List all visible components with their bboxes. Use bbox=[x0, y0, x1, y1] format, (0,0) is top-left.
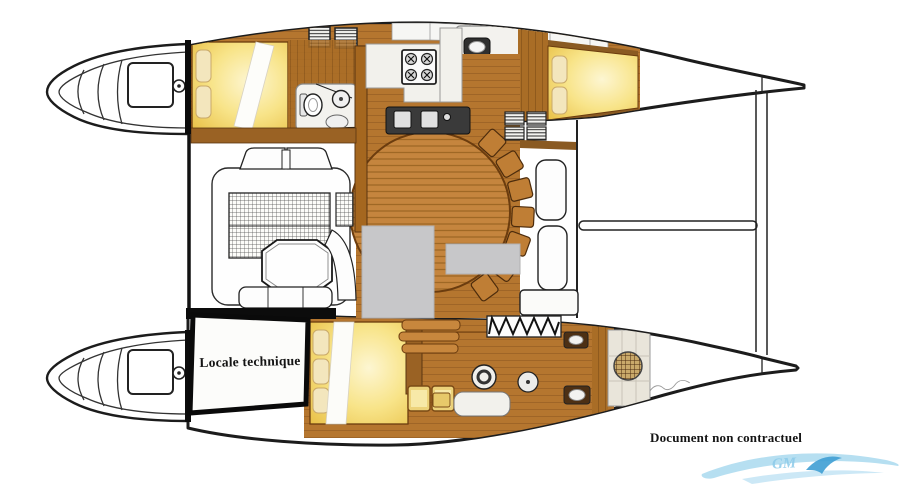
redaction-patch-1 bbox=[362, 226, 434, 318]
forward-crossbeam bbox=[579, 221, 757, 230]
mast-post bbox=[355, 46, 367, 232]
engine-hatch bbox=[128, 350, 173, 394]
bow-bridle-lines bbox=[756, 90, 767, 355]
cockpit bbox=[189, 128, 356, 310]
bench bbox=[454, 392, 510, 416]
pillow bbox=[196, 50, 211, 82]
foredeck-hatch-1 bbox=[536, 160, 566, 220]
redaction-patch-2 bbox=[446, 244, 520, 274]
pillow bbox=[196, 86, 211, 118]
disclaimer-label: Document non contractuel bbox=[650, 430, 820, 446]
port-stern-platform bbox=[47, 44, 188, 134]
deck-hatch-cover bbox=[520, 290, 578, 315]
shower-grate-icon bbox=[614, 352, 642, 380]
galley-sink-counter bbox=[386, 107, 470, 134]
foredeck-hatch-2 bbox=[538, 226, 567, 290]
tub-icon bbox=[326, 115, 348, 129]
technical-room-label: Locale technique bbox=[193, 317, 307, 407]
cabin-floor bbox=[592, 326, 608, 416]
port-aft-cabin-bed bbox=[192, 42, 288, 130]
salon bbox=[350, 28, 546, 318]
starboard-stern-platform bbox=[47, 332, 188, 421]
shower-tiles bbox=[608, 330, 650, 406]
pillow bbox=[313, 330, 329, 355]
pillow bbox=[552, 56, 567, 83]
hull-junction-bar-port bbox=[185, 40, 191, 134]
cockpit-bench-fwd bbox=[239, 287, 332, 308]
starboard-aft-cabin-bed bbox=[310, 322, 408, 424]
engine-hatch bbox=[128, 63, 173, 107]
pillow bbox=[313, 388, 329, 413]
hull-steps bbox=[399, 320, 460, 353]
pillow bbox=[552, 87, 567, 114]
stool bbox=[433, 393, 450, 407]
cockpit-table bbox=[262, 240, 332, 292]
port-aft-head bbox=[296, 84, 358, 132]
sink-icon bbox=[333, 91, 350, 108]
toilet-icon bbox=[300, 94, 322, 116]
floor-plan-drawing bbox=[0, 0, 900, 495]
wave-logo bbox=[702, 453, 899, 484]
cabin-floor bbox=[518, 28, 548, 124]
salon-aft-wall bbox=[191, 128, 356, 143]
wave-logo-text: GM bbox=[772, 455, 797, 473]
toilet-icon bbox=[472, 365, 496, 389]
catamaran-layout-plan: Locale technique Document non contractue… bbox=[0, 0, 900, 495]
stove-icon bbox=[402, 50, 436, 84]
pillow bbox=[313, 359, 329, 384]
cabin-wall bbox=[406, 320, 422, 394]
sink-icon bbox=[518, 372, 538, 392]
deck-strip bbox=[520, 140, 577, 150]
cockpit-bench-aft bbox=[240, 148, 332, 169]
